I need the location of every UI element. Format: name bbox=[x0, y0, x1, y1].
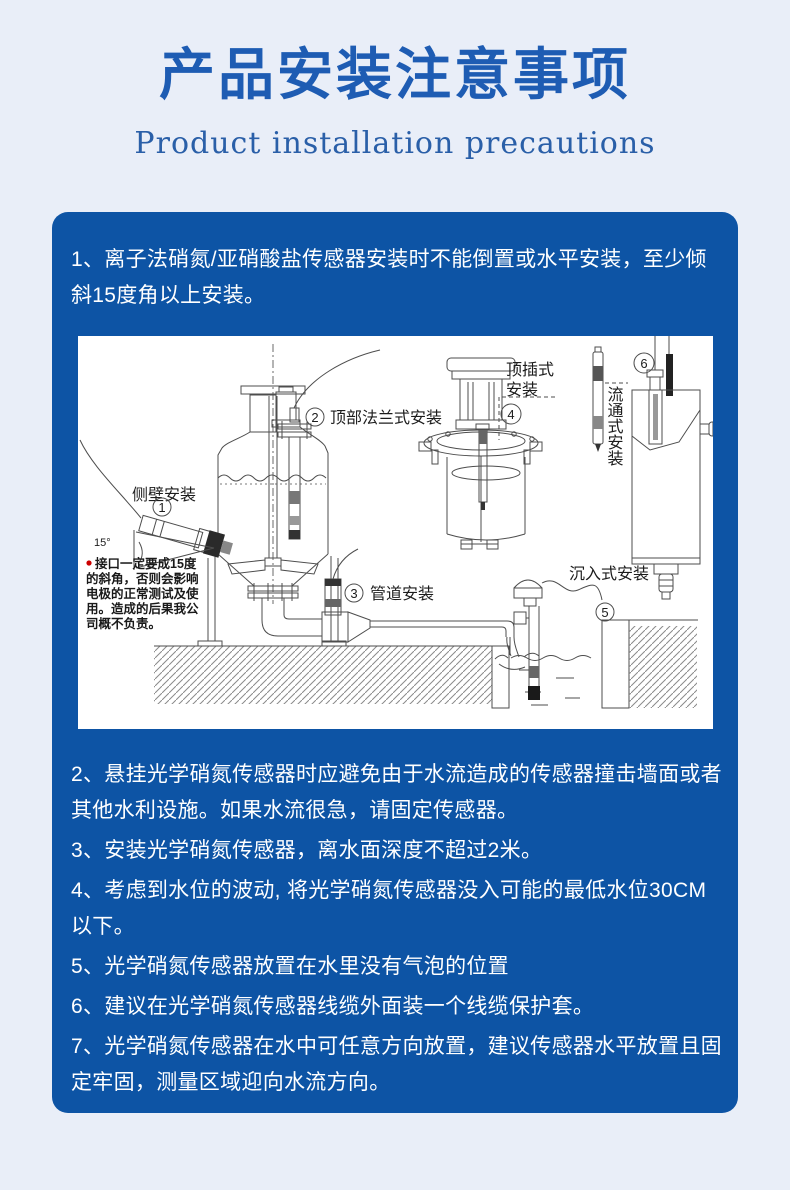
label-flow-through-installation: 流通式安装 bbox=[605, 386, 624, 466]
label-top-insert-installation-2: 安装 bbox=[506, 380, 538, 399]
page-subtitle: Product installation precautions bbox=[0, 126, 790, 161]
label-pipeline-installation: 管道安装 bbox=[370, 584, 434, 603]
svg-text:1: 1 bbox=[158, 500, 165, 515]
precaution-list-bottom: 2、悬挂光学硝氮传感器时应避免由于水流造成的传感器撞击墙面或者其他水利设施。如果… bbox=[71, 757, 722, 1105]
warning-note-line: 接口一定要成15度 bbox=[95, 556, 197, 571]
pipeline-sensor bbox=[325, 549, 358, 615]
immersion-sensor bbox=[514, 580, 602, 700]
precaution-item: 6、建议在光学硝氮传感器线缆外面装一个线缆保护套。 bbox=[71, 989, 722, 1025]
svg-text:2: 2 bbox=[311, 410, 318, 425]
bottom-strip bbox=[0, 1190, 790, 1198]
warning-bullet bbox=[86, 560, 91, 565]
side-wall-probe bbox=[80, 440, 235, 570]
label-15-degree-angle: 15° bbox=[94, 537, 111, 549]
top-flange-probe bbox=[278, 350, 380, 539]
warning-note-line: 司概不负责。 bbox=[86, 616, 161, 631]
reaction-tank bbox=[198, 344, 346, 646]
label-immersion-installation: 沉入式安装 bbox=[569, 564, 649, 583]
precaution-item: 1、离子法硝氮/亚硝酸盐传感器安装时不能倒置或水平安装，至少倾斜15度角以上安装… bbox=[71, 242, 722, 314]
precaution-item: 2、悬挂光学硝氮传感器时应避免由于水流造成的传感器撞击墙面或者其他水利设施。如果… bbox=[71, 757, 722, 829]
diagram-labels: 侧壁安装 1 2 顶部法兰式安装 3 管道安装 顶插式 安装 4 沉入式安装 5 bbox=[85, 353, 654, 631]
warning-note-line: 的斜角，否则会影响 bbox=[86, 571, 199, 586]
svg-text:6: 6 bbox=[640, 356, 647, 371]
ground-and-pool bbox=[154, 620, 698, 708]
page-title: 产品安装注意事项 bbox=[0, 30, 790, 111]
svg-text:3: 3 bbox=[350, 586, 357, 601]
precaution-item: 7、光学硝氮传感器在水中可任意方向放置，建议传感器水平放置且固定牢固，测量区域迎… bbox=[71, 1029, 722, 1101]
precautions-card: 1、离子法硝氮/亚硝酸盐传感器安装时不能倒置或水平安装，至少倾斜15度角以上安装… bbox=[52, 212, 738, 1113]
precaution-list-top: 1、离子法硝氮/亚硝酸盐传感器安装时不能倒置或水平安装，至少倾斜15度角以上安装… bbox=[71, 242, 722, 318]
warning-note-line: 电极的正常测试及使 bbox=[86, 586, 199, 601]
precaution-item: 3、安装光学硝氮传感器，离水面深度不超过2米。 bbox=[71, 833, 722, 869]
precaution-item: 5、光学硝氮传感器放置在水里没有气泡的位置 bbox=[71, 949, 722, 985]
installation-diagram: 侧壁安装 1 2 顶部法兰式安装 3 管道安装 顶插式 安装 4 沉入式安装 5 bbox=[78, 336, 713, 729]
label-top-insert-installation-1: 顶插式 bbox=[506, 360, 554, 379]
precaution-item: 4、考虑到水位的波动, 将光学硝氮传感器没入可能的最低水位30CM以下。 bbox=[71, 873, 722, 945]
flow-through-cell bbox=[632, 336, 713, 599]
warning-note-line: 用。造成的后果我公 bbox=[85, 601, 199, 616]
page: 产品安装注意事项 Product installation precaution… bbox=[0, 0, 790, 1198]
svg-text:5: 5 bbox=[601, 605, 608, 620]
svg-text:4: 4 bbox=[507, 407, 514, 422]
diagram-panel: 侧壁安装 1 2 顶部法兰式安装 3 管道安装 顶插式 安装 4 沉入式安装 5 bbox=[78, 336, 713, 729]
label-top-flange-installation: 顶部法兰式安装 bbox=[330, 408, 442, 427]
